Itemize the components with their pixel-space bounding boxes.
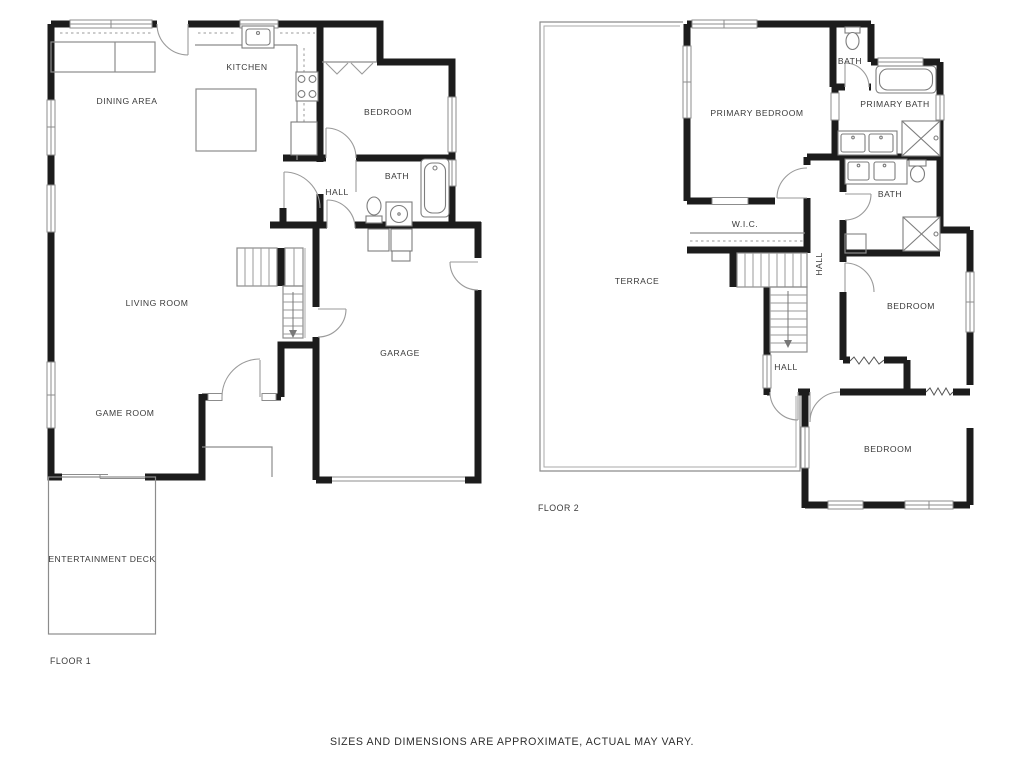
- window: [828, 501, 863, 509]
- door-arc: [845, 194, 871, 220]
- door-arc: [845, 63, 869, 87]
- floorplan-canvas: KITCHEN DINING AREA BEDROOM BATH HALL LI…: [0, 0, 1024, 768]
- sink-icon: [386, 202, 412, 226]
- garage-door: [332, 475, 465, 484]
- vanity-sinks-icon: [838, 131, 897, 155]
- floor2-walls: [687, 24, 970, 508]
- window: [683, 46, 691, 118]
- window: [966, 272, 974, 332]
- door-arc: [845, 263, 874, 292]
- window: [47, 100, 55, 155]
- door-arc: [157, 24, 188, 55]
- door-arc: [327, 200, 355, 228]
- footer-disclaimer: SIZES AND DIMENSIONS ARE APPROXIMATE, AC…: [330, 736, 694, 748]
- window: [801, 427, 809, 468]
- window: [70, 20, 152, 28]
- window-sidelite: [262, 394, 276, 401]
- room-label-primary-bedroom: PRIMARY BEDROOM: [710, 108, 803, 118]
- floor1-plan: KITCHEN DINING AREA BEDROOM BATH HALL LI…: [47, 20, 481, 666]
- window: [692, 20, 757, 28]
- door-arc: [284, 172, 320, 208]
- porch-outline: [202, 447, 272, 477]
- window: [936, 95, 944, 120]
- shower-icon: [903, 217, 940, 251]
- door-arc: [770, 392, 798, 420]
- window: [47, 362, 55, 428]
- window-sidelite: [208, 394, 222, 401]
- room-label-kitchen: KITCHEN: [226, 62, 267, 72]
- room-label-hall-upper: HALL: [814, 252, 824, 276]
- stove-icon: [296, 72, 318, 101]
- cased-opening: [712, 198, 748, 205]
- toilet-icon: [909, 160, 926, 182]
- counter: [51, 42, 155, 72]
- door-arc: [222, 359, 260, 397]
- room-label-bath-wc: BATH: [838, 56, 862, 66]
- floor1-bath-fixtures: [366, 159, 449, 226]
- floor2-plan: PRIMARY BEDROOM BATH PRIMARY BATH BATH W…: [538, 20, 974, 513]
- kitchen-fixtures: [51, 26, 318, 160]
- toilet-icon: [845, 27, 860, 50]
- room-label-bath2: BATH: [878, 189, 902, 199]
- room-label-wic: W.I.C.: [732, 219, 758, 229]
- room-label-entertainment-deck: ENTERTAINMENT DECK: [48, 554, 155, 564]
- room-label-game-room: GAME ROOM: [96, 408, 155, 418]
- door-arc: [326, 128, 356, 158]
- closet-bifold-icon: [322, 62, 377, 74]
- kitchen-sink-icon: [242, 26, 274, 48]
- door-arc: [777, 168, 807, 198]
- window: [763, 355, 771, 388]
- washer-dryer-icon: [368, 229, 412, 261]
- room-label-primary-bath: PRIMARY BATH: [860, 99, 930, 109]
- kitchen-island: [196, 89, 256, 151]
- window: [905, 501, 953, 509]
- window: [878, 58, 923, 66]
- toilet-icon: [366, 197, 382, 223]
- room-label-dining-area: DINING AREA: [97, 96, 158, 106]
- fridge-icon: [291, 122, 317, 155]
- stairs-floor2: [737, 253, 807, 352]
- room-label-garage: GARAGE: [380, 348, 420, 358]
- door-arc: [450, 262, 478, 290]
- room-label-hall-lower: HALL: [774, 362, 798, 372]
- shower-icon: [902, 121, 940, 156]
- room-label-bath: BATH: [385, 171, 409, 181]
- cased-opening: [831, 93, 839, 120]
- wic-rod: [690, 233, 805, 241]
- vanity-sinks-icon: [845, 159, 907, 184]
- room-label-bedroom-lower: BEDROOM: [864, 444, 912, 454]
- room-label-bedroom: BEDROOM: [364, 107, 412, 117]
- room-label-hall: HALL: [325, 187, 349, 197]
- door-arc: [810, 392, 840, 422]
- floor2-label: FLOOR 2: [538, 503, 579, 513]
- floor1-label: FLOOR 1: [50, 656, 91, 666]
- room-label-bedroom-middle: BEDROOM: [887, 301, 935, 311]
- bathtub-icon: [876, 66, 936, 93]
- window: [448, 97, 456, 152]
- floorplan-svg: KITCHEN DINING AREA BEDROOM BATH HALL LI…: [0, 0, 1024, 768]
- window: [47, 185, 55, 232]
- stairs-floor1: [237, 248, 305, 338]
- room-label-living-room: LIVING ROOM: [126, 298, 189, 308]
- door-arc: [318, 309, 346, 337]
- room-label-terrace: TERRACE: [615, 276, 660, 286]
- bathtub-icon: [421, 159, 449, 217]
